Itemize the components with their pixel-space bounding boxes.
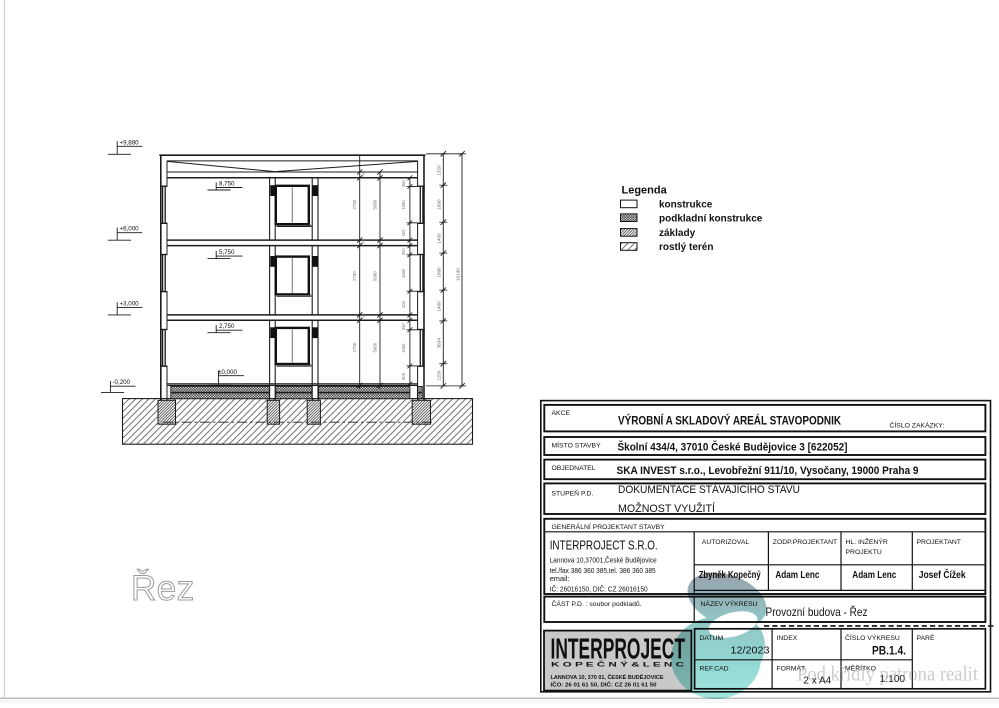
svg-text:Školní 434/4, 37010 České Budě: Školní 434/4, 37010 České Budějovice 3 [… (618, 441, 848, 454)
svg-text:email:: email: (550, 574, 570, 583)
svg-text:LANNOVA 10, 370 01, ČESKÉ BUDĚ: LANNOVA 10, 370 01, ČESKÉ BUDĚJOVICE (551, 673, 664, 681)
svg-text:Adam Lenc: Adam Lenc (852, 570, 896, 581)
svg-text:5000: 5000 (372, 342, 377, 352)
svg-text:10140: 10140 (455, 268, 460, 281)
svg-text:50: 50 (362, 314, 366, 318)
svg-text:350: 350 (401, 248, 406, 256)
svg-text:+9,880: +9,880 (120, 139, 140, 146)
svg-text:1250: 1250 (437, 370, 442, 381)
svg-text:MOŽNOST VYUŽITÍ: MOŽNOST VYUŽITÍ (618, 502, 716, 515)
svg-text:+6,000: +6,000 (120, 226, 140, 233)
svg-text:2750: 2750 (352, 271, 357, 281)
svg-text:5080: 5080 (372, 271, 377, 281)
svg-text:8,750: 8,750 (219, 180, 235, 187)
svg-text:1680: 1680 (401, 200, 406, 210)
svg-text:AKCE: AKCE (552, 410, 571, 417)
svg-text:1680: 1680 (401, 343, 406, 353)
svg-text:5080: 5080 (372, 199, 377, 209)
svg-text:ZODP.PROJEKTANT: ZODP.PROJEKTANT (773, 539, 837, 546)
svg-text:±0,000: ±0,000 (218, 369, 237, 376)
svg-text:STUPEŇ P.D.: STUPEŇ P.D. (552, 489, 594, 498)
svg-text:1690: 1690 (437, 267, 442, 278)
svg-text:400: 400 (401, 229, 406, 237)
svg-text:ČÍSLO ZAKÁZKY:: ČÍSLO ZAKÁZKY: (890, 421, 945, 430)
svg-text:rostlý terén: rostlý terén (659, 242, 713, 253)
svg-text:1690: 1690 (437, 199, 442, 210)
svg-text:IČO: 26 01 61 50, DIČ:: IČO: 26 01 61 50, DIČ: CZ 26 01 61 50 (551, 681, 657, 688)
svg-text:Josef Čížek: Josef Čížek (919, 568, 966, 581)
svg-text:Lannova 10,37001,České Budějov: Lannova 10,37001,České Budějovice (550, 556, 657, 565)
svg-text:350: 350 (401, 179, 406, 187)
svg-text:800: 800 (401, 372, 406, 380)
svg-text:DOKUMENTACE STÁVAJÍCÍHO STAVU: DOKUMENTACE STÁVAJÍCÍHO STAVU (618, 483, 800, 496)
svg-text:PROJEKTU: PROJEKTU (846, 549, 882, 556)
svg-text:1320: 1320 (437, 165, 442, 176)
svg-text:IČ: 26016150, DIČ: CZ 26016150: IČ: 26016150, DIČ: CZ 26016150 (550, 584, 648, 593)
svg-text:5,750: 5,750 (219, 249, 235, 256)
svg-text:OBJEDNATEL: OBJEDNATEL (552, 465, 596, 472)
svg-text:1680: 1680 (401, 268, 406, 278)
svg-text:VÝROBNÍ A SKLADOVÝ AREÁL STAVO: VÝROBNÍ A SKLADOVÝ AREÁL STAVOPODNIK (618, 414, 841, 428)
svg-text:HL. INŽENÝR: HL. INŽENÝR (846, 537, 888, 546)
svg-text:AUTORIZOVAL: AUTORIZOVAL (702, 539, 750, 546)
svg-text:podkladní konstrukce: podkladní konstrukce (659, 213, 763, 224)
svg-text:50: 50 (362, 172, 366, 176)
svg-text:Řez: Řez (131, 569, 195, 608)
svg-text:400: 400 (401, 300, 406, 308)
svg-text:ČÍSLO VÝKRESU: ČÍSLO VÝKRESU (845, 633, 900, 642)
svg-text:2750: 2750 (352, 199, 357, 209)
svg-text:PARÉ: PARÉ (917, 633, 935, 642)
svg-text:2,750: 2,750 (219, 323, 235, 330)
svg-text:INTERPROJECT S.R.O.: INTERPROJECT S.R.O. (550, 539, 658, 553)
svg-text:350: 350 (401, 322, 406, 330)
svg-text:50: 50 (362, 240, 366, 244)
svg-text:GENERÁLNÍ PROJEKTANT STAVBY: GENERÁLNÍ PROJEKTANT STAVBY (552, 522, 666, 531)
svg-text:základy: základy (659, 228, 696, 239)
svg-text:konstrukce: konstrukce (659, 200, 713, 211)
svg-text:PB.1.4.: PB.1.4. (872, 643, 906, 657)
svg-text:2750: 2750 (352, 342, 357, 352)
svg-text:Pod křídly patrona realit: Pod křídly patrona realit (797, 662, 978, 686)
svg-text:3634: 3634 (437, 338, 442, 349)
svg-text:SKA INVEST s.r.o., Levobřežní: SKA INVEST s.r.o., Levobřežní 911/10, Vy… (617, 465, 919, 477)
svg-text:Legenda: Legenda (622, 185, 668, 197)
svg-text:PROJEKTANT: PROJEKTANT (917, 539, 961, 546)
svg-text:MÍSTO STAVBY: MÍSTO STAVBY (552, 440, 602, 449)
svg-text:-0,200: -0,200 (113, 379, 131, 386)
svg-text:1400: 1400 (437, 301, 442, 312)
svg-text:ČÁST P.D. : soubor podkladů.: ČÁST P.D. : soubor podkladů. (552, 599, 642, 608)
svg-text:1400: 1400 (437, 233, 442, 244)
svg-text:+3,000: +3,000 (120, 300, 140, 307)
